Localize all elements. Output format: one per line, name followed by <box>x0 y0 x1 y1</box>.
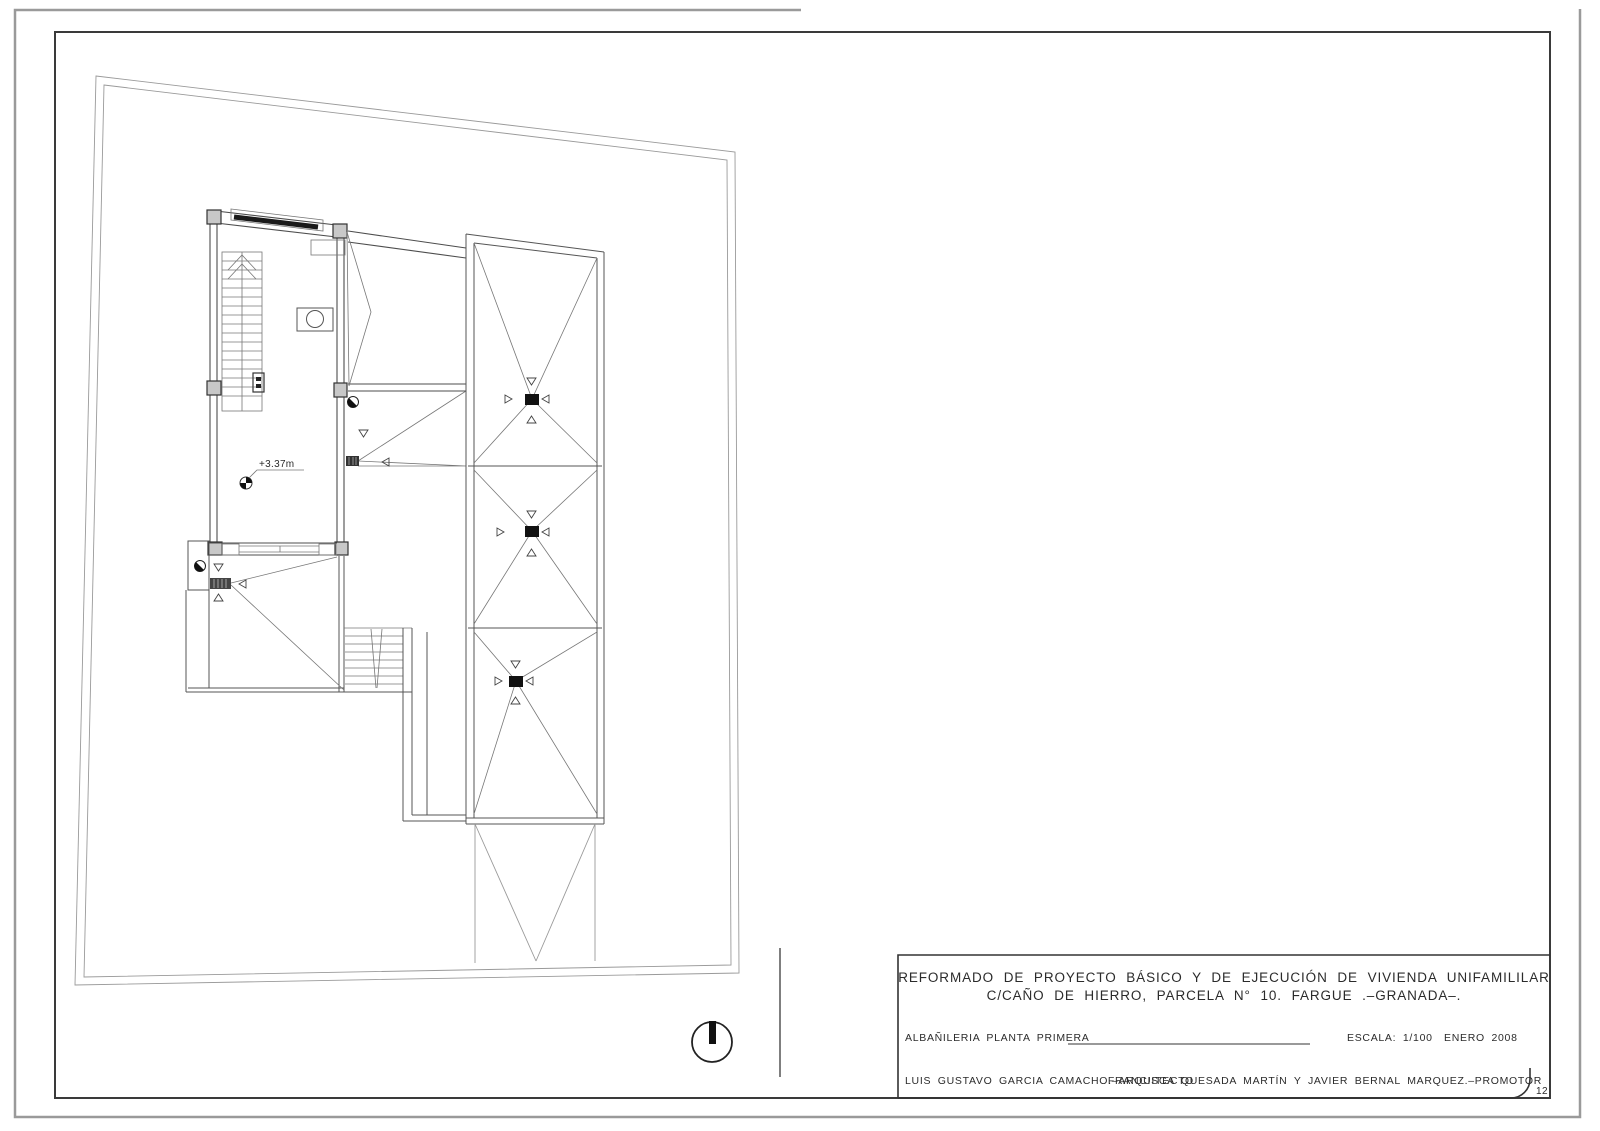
slope-triangle-icon <box>542 395 549 403</box>
roof-section-1 <box>474 243 597 463</box>
project-title-line2: C/CAÑO DE HIERRO, PARCELA N° 10. FARGUE … <box>987 988 1462 1003</box>
date-label: ENERO 2008 <box>1444 1032 1518 1044</box>
slope-triangle-icon <box>214 594 223 601</box>
outer-page-border <box>15 9 1580 1117</box>
exterior-stair <box>344 628 412 688</box>
north-arrow-icon <box>692 1021 732 1062</box>
slope-triangle-icon <box>505 395 512 403</box>
roof-facet <box>347 232 371 386</box>
columns <box>207 210 348 555</box>
slope-triangle-icon <box>527 511 536 518</box>
slope-triangle-icon <box>511 697 520 704</box>
scupper-icon <box>194 561 205 572</box>
drain-square-icon <box>525 526 539 537</box>
top-wall-lintel <box>231 209 345 255</box>
slope-triangle-icon <box>214 564 223 571</box>
drain-square-icon <box>210 578 231 589</box>
scale-label: ESCALA: 1/100 <box>1347 1032 1433 1044</box>
slope-triangle-icon <box>511 661 520 668</box>
patio-walls <box>403 628 466 821</box>
terrace <box>186 541 412 692</box>
promoter-label: FRANCISCA QUESADA MARTÍN Y JAVIER BERNAL… <box>1108 1074 1542 1087</box>
sheet-number: 12 <box>1536 1086 1548 1097</box>
scupper-icon <box>347 397 358 408</box>
drawing-sheet: +3.37m <box>0 0 1600 1131</box>
level-marker: +3.37m <box>240 459 304 489</box>
slope-triangle-icon <box>527 416 536 423</box>
drawing-name: ALBAÑILERIA PLANTA PRIMERA <box>905 1031 1089 1044</box>
title-block: REFORMADO DE PROYECTO BÁSICO Y DE EJECUC… <box>898 955 1550 1098</box>
roof-section-3 <box>474 632 597 814</box>
drain-square-icon <box>525 394 539 405</box>
middle-section <box>346 232 466 466</box>
plan-canvas: +3.37m <box>0 0 1600 1131</box>
site-boundary <box>75 76 739 985</box>
slope-triangle-icon <box>359 430 368 437</box>
slope-triangle-icon <box>542 528 549 536</box>
interior-stair <box>222 252 264 411</box>
roof-section-2 <box>474 470 597 624</box>
chimney-shaft <box>297 308 333 331</box>
roof-extension <box>475 824 595 963</box>
slope-triangle-icon <box>497 528 504 536</box>
project-title-line1: REFORMADO DE PROYECTO BÁSICO Y DE EJECUC… <box>898 970 1550 985</box>
slope-triangle-icon <box>495 677 502 685</box>
inner-page-border <box>55 32 1550 1098</box>
level-label: +3.37m <box>259 459 294 470</box>
drain-square-icon <box>509 676 523 687</box>
slope-triangle-icon <box>527 549 536 556</box>
slope-triangle-icon <box>526 677 533 685</box>
roof-strip <box>466 234 604 963</box>
slope-triangle-icon <box>527 378 536 385</box>
drain-square-icon <box>346 456 359 466</box>
slope-triangle-icon <box>239 580 246 588</box>
